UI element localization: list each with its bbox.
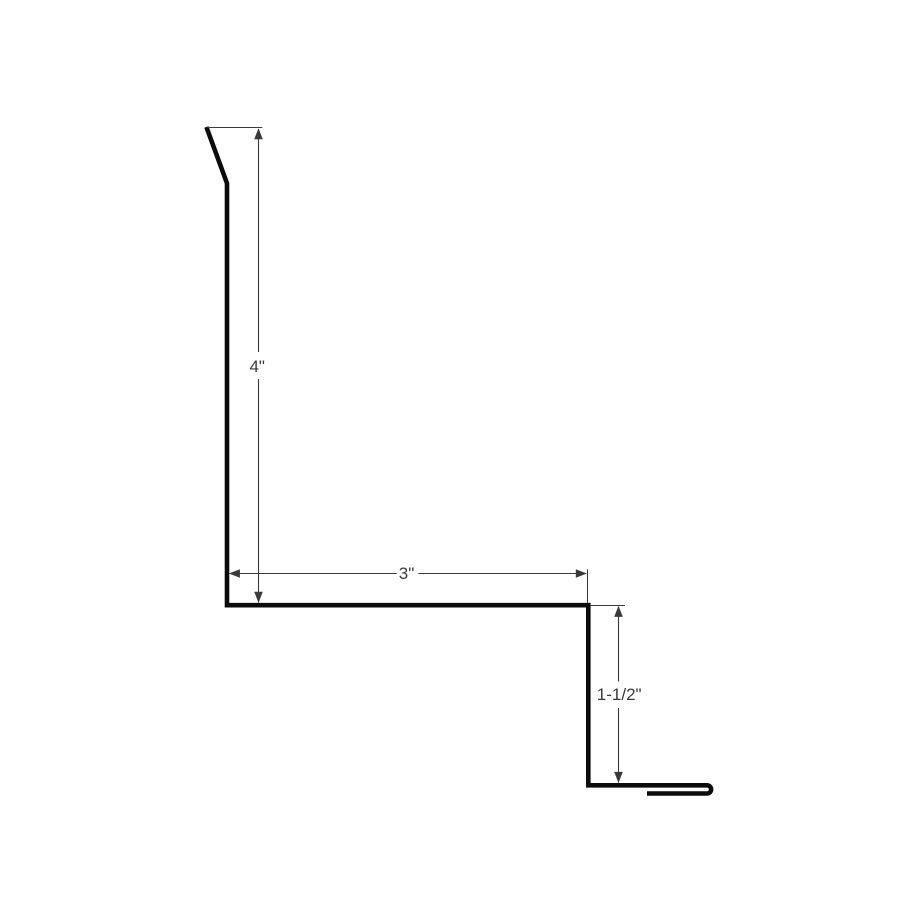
svg-text:1-1/2": 1-1/2" [597, 685, 642, 704]
svg-text:3": 3" [399, 564, 415, 583]
svg-text:4": 4" [249, 357, 265, 376]
